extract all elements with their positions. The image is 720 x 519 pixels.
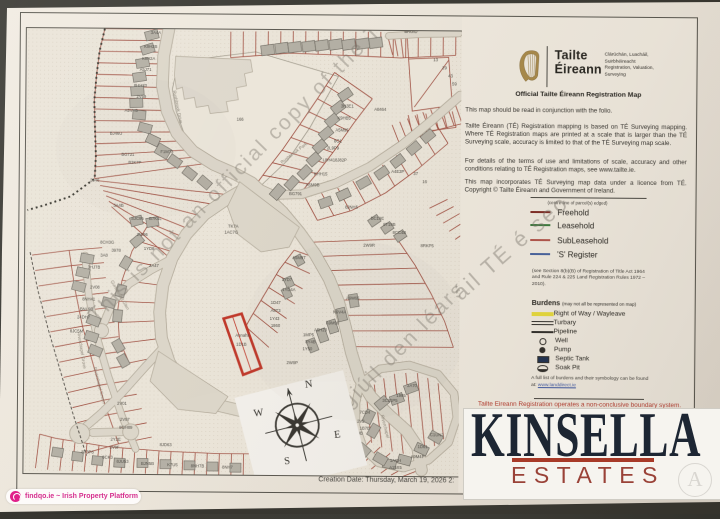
svg-text:2V97: 2V97	[120, 417, 130, 422]
svg-text:2W96: 2W96	[137, 232, 149, 237]
svg-text:BG791: BG791	[289, 191, 303, 196]
svg-text:A5J71: A5J71	[140, 67, 153, 72]
svg-text:29: 29	[442, 65, 447, 70]
svg-text:A5M9B: A5M9B	[306, 182, 320, 187]
svg-text:16: 16	[422, 179, 427, 184]
svg-text:A15X5: A15X5	[389, 465, 402, 470]
svg-text:2Y2E: 2Y2E	[111, 437, 121, 442]
svg-text:2L9P9: 2L9P9	[327, 145, 340, 150]
svg-text:8CC4B: 8CC4B	[393, 230, 407, 235]
svg-text:BC19E: BC19E	[371, 216, 385, 221]
svg-text:43: 43	[448, 73, 453, 78]
svg-text:3H3E1: 3H3E1	[341, 104, 355, 109]
svg-text:1D1B: 1D1B	[236, 342, 247, 347]
svg-text:KHH15: KHH15	[314, 171, 328, 176]
svg-text:3A4A: 3A4A	[151, 30, 161, 35]
svg-text:1D61: 1D61	[418, 444, 429, 449]
svg-text:8T19B: 8T19B	[383, 222, 396, 227]
svg-text:A5M95: A5M95	[335, 127, 349, 132]
svg-text:37: 37	[413, 171, 418, 176]
svg-text:8J82P: 8J82P	[335, 157, 347, 162]
svg-text:13: 13	[433, 57, 438, 62]
svg-text:BRUID: BRUID	[404, 29, 417, 34]
svg-text:8GH89: 8GH89	[119, 425, 133, 430]
svg-text:L8H41: L8H41	[323, 157, 336, 162]
svg-text:A8464: A8464	[374, 107, 387, 112]
svg-text:1AC7G: 1AC7G	[224, 230, 238, 235]
svg-text:K9H2A: K9H2A	[142, 56, 156, 61]
svg-text:2V9F: 2V9F	[110, 445, 120, 450]
svg-text:8CK3: 8CK3	[102, 455, 113, 460]
svg-text:8RKP5: 8RKP5	[421, 243, 435, 248]
svg-text:A9M4P: A9M4P	[411, 454, 425, 459]
svg-text:8G1: 8G1	[334, 138, 343, 143]
svg-text:8JU53: 8JU53	[116, 459, 129, 464]
svg-text:C1UNJ: C1UNJ	[430, 432, 444, 437]
svg-text:TK7A: TK7A	[228, 224, 239, 229]
svg-text:166: 166	[237, 117, 245, 122]
svg-text:1ACH: 1ACH	[390, 458, 401, 463]
svg-text:8JNH5: 8JNH5	[345, 205, 359, 210]
svg-text:59: 59	[452, 81, 457, 86]
svg-text:K9HB5: K9HB5	[338, 115, 352, 120]
svg-text:A4E3P: A4E3P	[391, 169, 404, 174]
svg-text:8T3P8: 8T3P8	[81, 449, 94, 454]
svg-text:K9H2B: K9H2B	[144, 44, 158, 49]
